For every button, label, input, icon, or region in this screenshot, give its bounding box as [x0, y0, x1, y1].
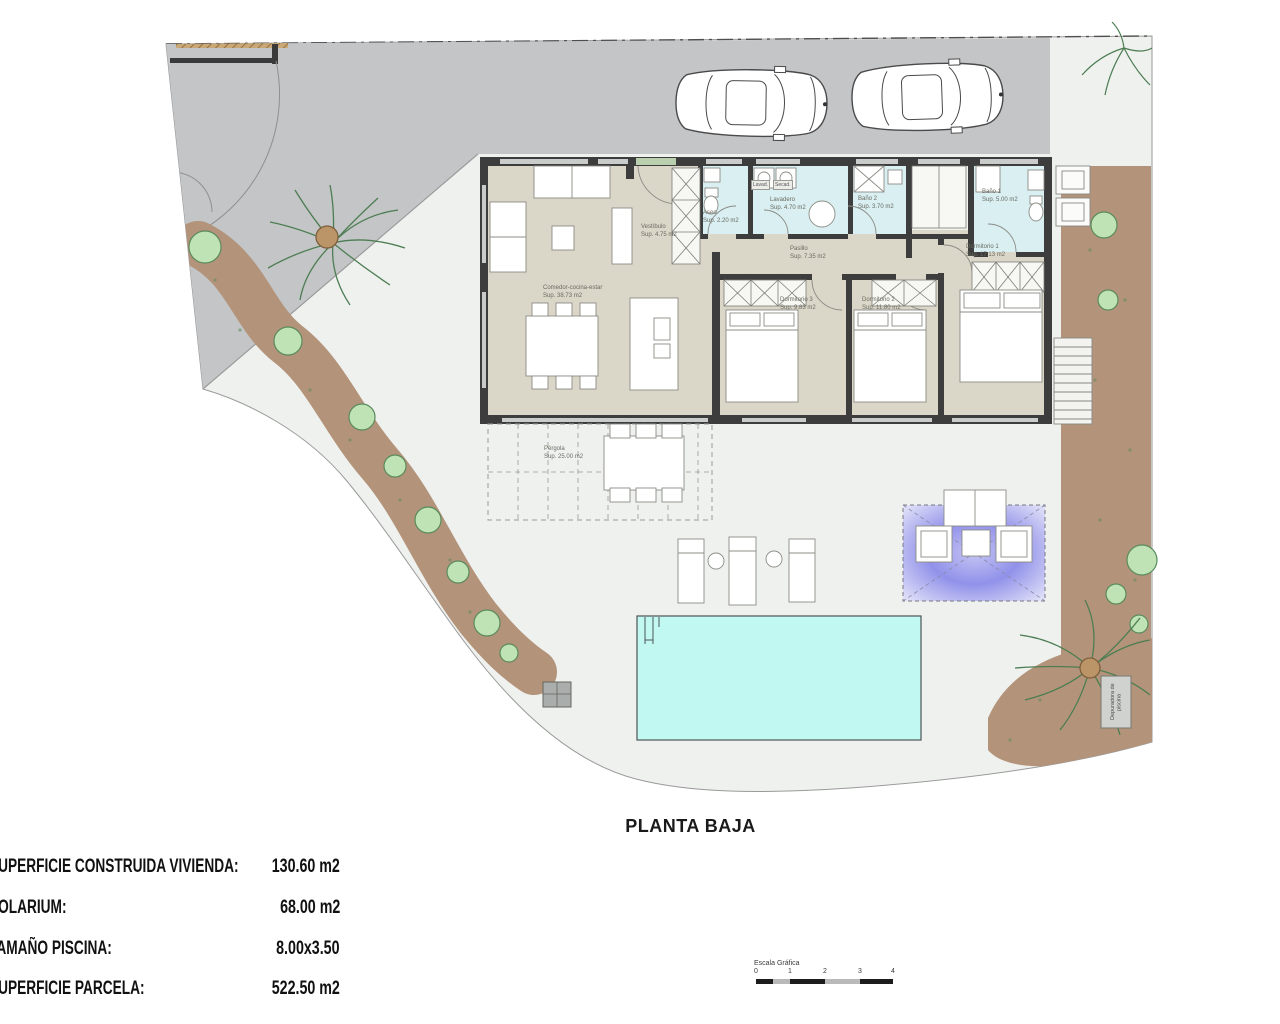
room-label-bano2: Baño 2Sup. 3.70 m2: [858, 196, 894, 212]
sun-loungers: [678, 537, 815, 605]
pool-equipment-label: Depuradora de piscina: [1101, 676, 1131, 728]
scale-segment: [790, 979, 825, 984]
room-label-bano1: Baño 1Sup. 5.00 m2: [982, 189, 1018, 205]
scale-segment: [860, 979, 893, 984]
room-label-living: Comedor-cocina-estarSup. 38.73 m2: [543, 285, 602, 301]
room-label-dormitorio2: Dormitorio 2Sup. 11.80 m2: [862, 297, 901, 313]
entrance-fence: [170, 58, 276, 63]
lounge-area: [903, 490, 1045, 601]
pool: [637, 616, 921, 740]
room-label-aseo: AseoSup. 2.20 m2: [703, 210, 739, 226]
room-label-dormitorio3: Dormitorio 3Sup. 9.83 m2: [780, 297, 816, 313]
car-icon: [851, 57, 1004, 136]
stairs: [1054, 338, 1092, 424]
dining-table: [526, 316, 598, 376]
floor-plan-page: Comedor-cocina-estarSup. 38.73 m2 Vestíb…: [0, 0, 1280, 1024]
room-label-lavadero: LavaderoSup. 4.70 m2: [770, 197, 806, 213]
scale-segment: [825, 979, 860, 984]
dryer-tag: Secad.: [773, 180, 793, 190]
scale-bar-title: Escala Gráfica: [754, 960, 800, 967]
room-label-vestibulo: VestíbuloSup. 4.75 m2: [641, 224, 677, 240]
outdoor-dining-set: [604, 424, 684, 502]
washer-tag: Lavad.: [751, 180, 770, 190]
room-label-pasillo: PasilloSup. 7.35 m2: [790, 246, 826, 262]
utility-box: [543, 682, 571, 707]
car-icon: [675, 65, 827, 142]
scale-segment: [756, 979, 773, 984]
scale-segment: [773, 979, 790, 984]
room-label-pergola: PérgolaSup. 25.00 m2: [544, 446, 583, 462]
page-title: PLANTA BAJA: [618, 816, 763, 837]
entrance-doormat: [636, 158, 676, 165]
room-label-dormitorio1: Dormitorio 1Sup. 17.13 m2: [966, 244, 1005, 260]
